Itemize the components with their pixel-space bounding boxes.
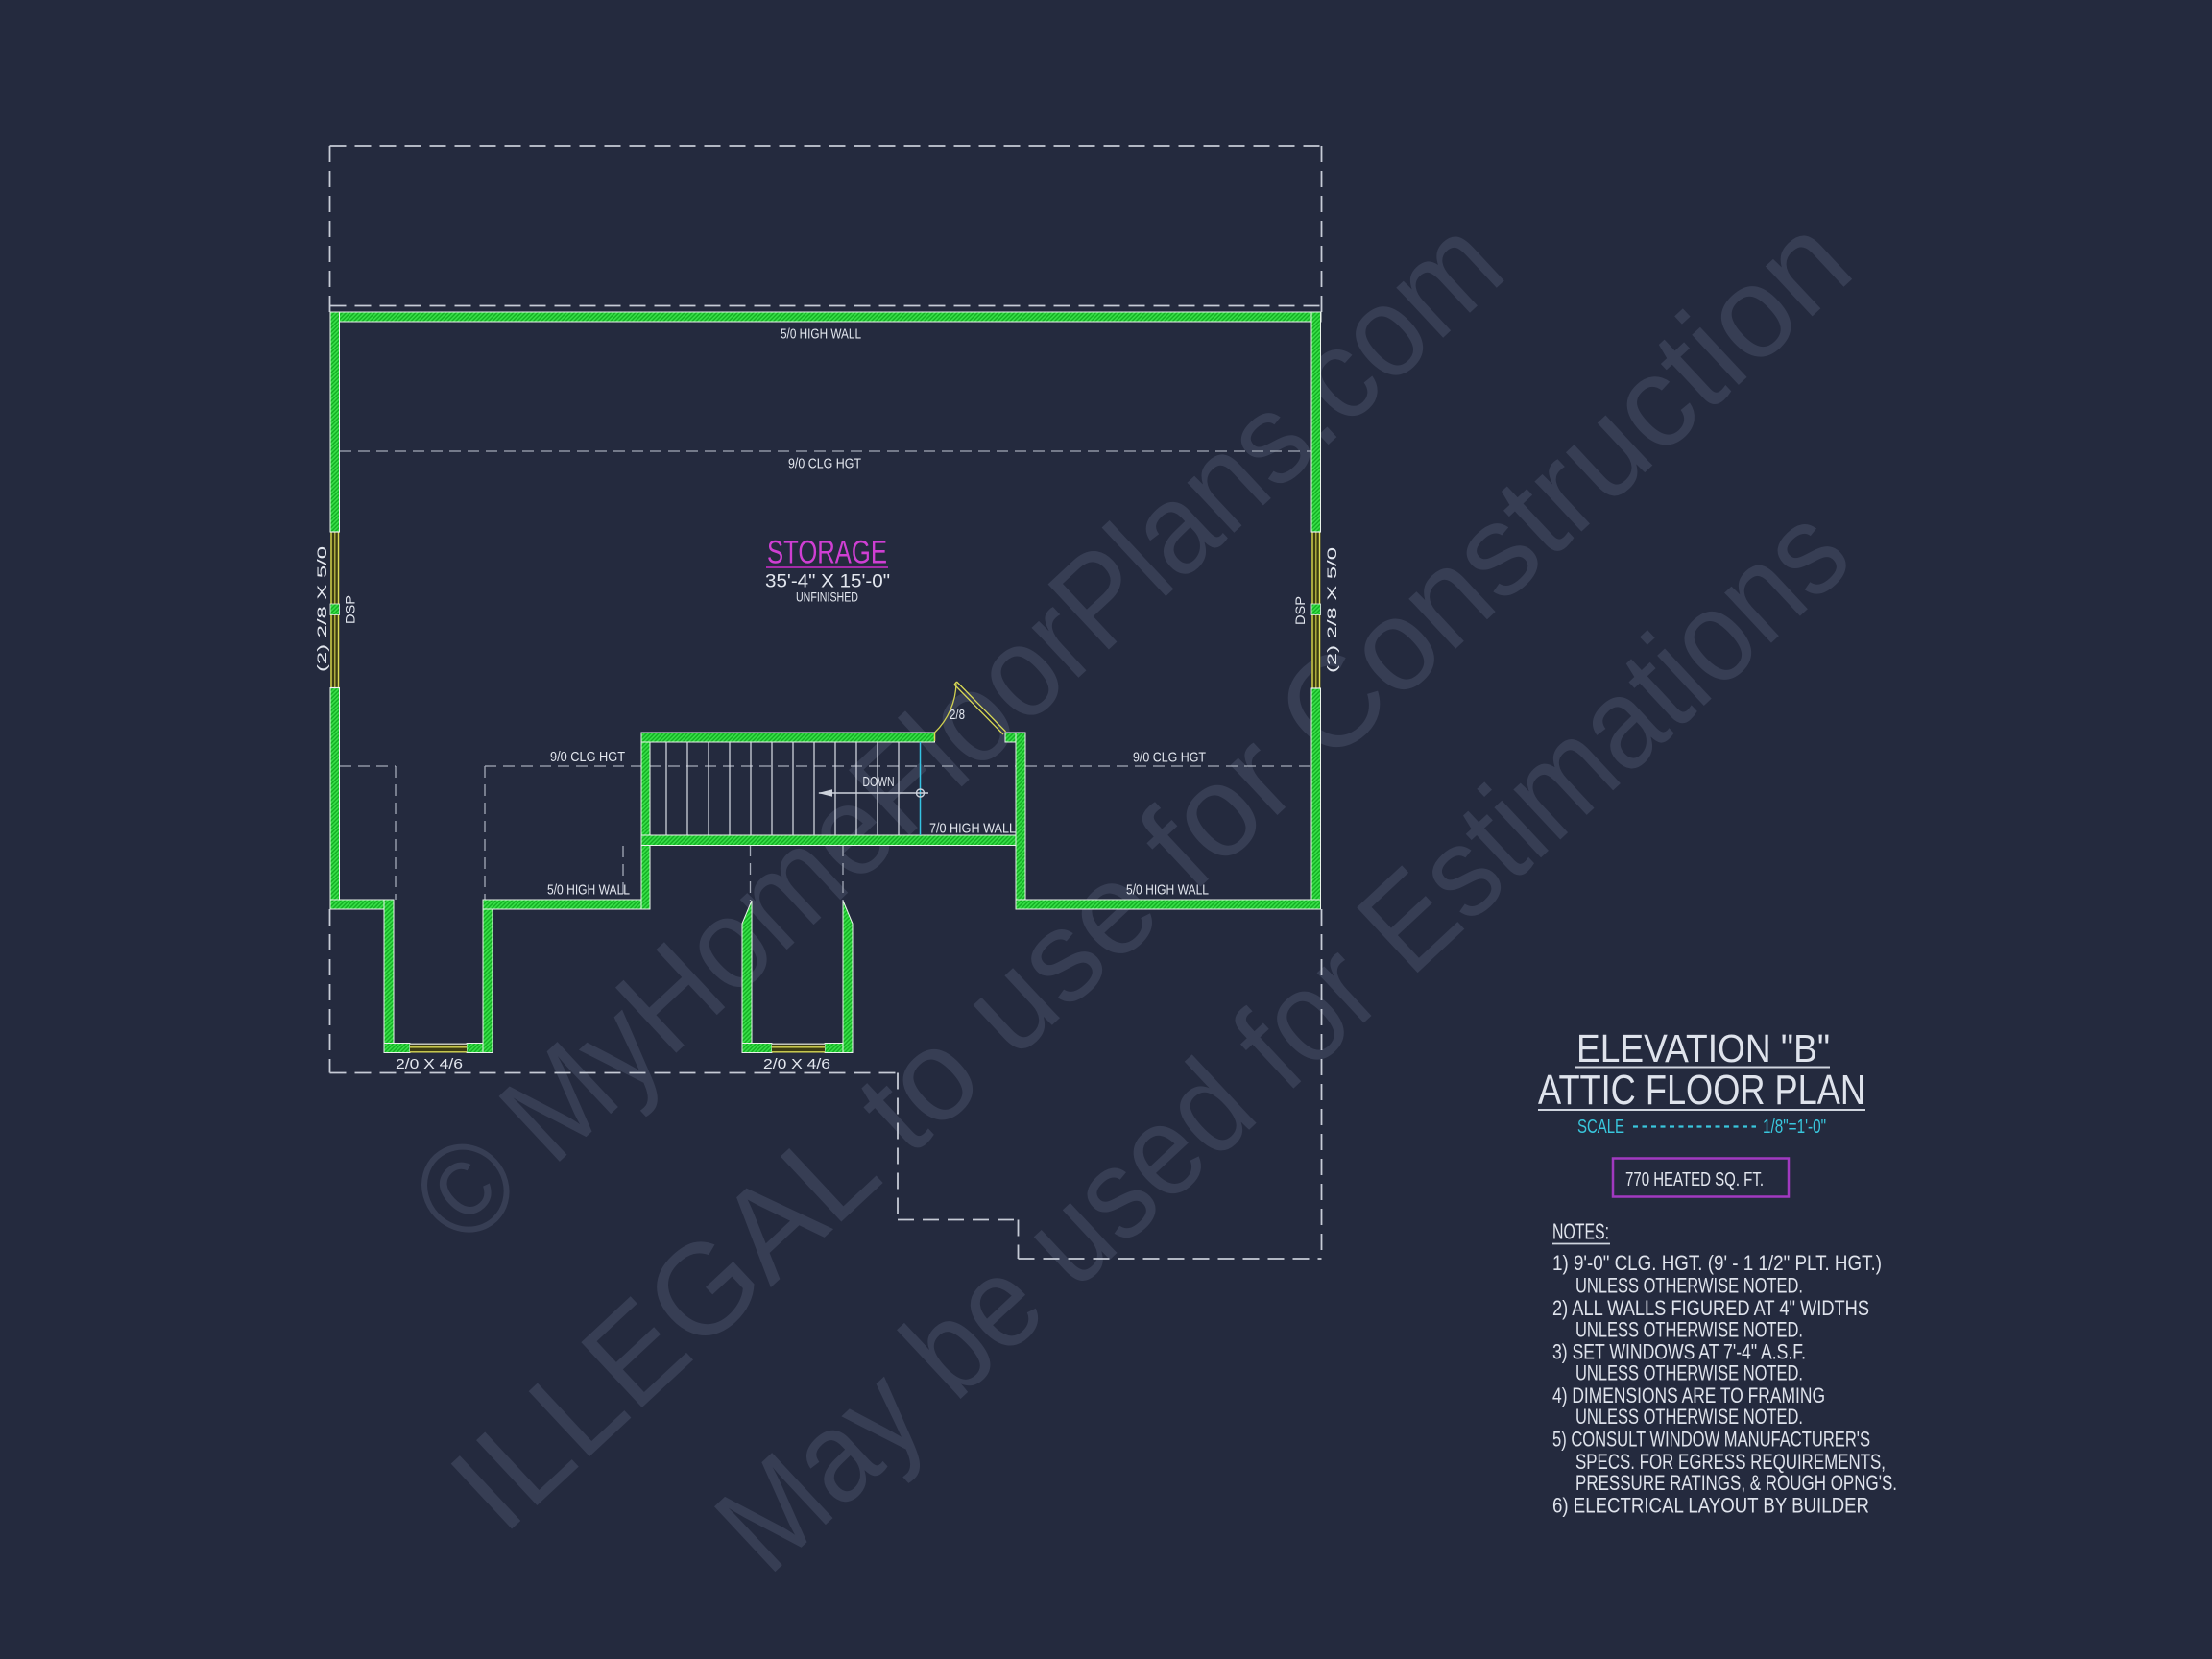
- svg-text:35'-4" X 15'-0": 35'-4" X 15'-0": [765, 572, 890, 592]
- svg-text:(2) 2/8 X 5/0: (2) 2/8 X 5/0: [314, 546, 329, 672]
- svg-text:5) CONSULT WINDOW MANUFACTURER: 5) CONSULT WINDOW MANUFACTURER'S: [1552, 1428, 1870, 1452]
- svg-text:5/0 HIGH WALL: 5/0 HIGH WALL: [1126, 883, 1209, 899]
- svg-text:UNLESS OTHERWISE NOTED.: UNLESS OTHERWISE NOTED.: [1575, 1361, 1803, 1385]
- svg-text:UNLESS OTHERWISE NOTED.: UNLESS OTHERWISE NOTED.: [1575, 1274, 1803, 1298]
- svg-text:9/0 CLG HGT: 9/0 CLG HGT: [788, 457, 861, 472]
- svg-text:DSP: DSP: [1292, 596, 1308, 625]
- svg-text:6) ELECTRICAL LAYOUT BY BUILDE: 6) ELECTRICAL LAYOUT BY BUILDER: [1552, 1494, 1869, 1518]
- svg-text:DSP: DSP: [343, 595, 358, 624]
- svg-text:2/0 X 4/6: 2/0 X 4/6: [396, 1057, 463, 1072]
- svg-text:ATTIC FLOOR PLAN: ATTIC FLOOR PLAN: [1538, 1067, 1865, 1114]
- svg-text:UNLESS OTHERWISE NOTED.: UNLESS OTHERWISE NOTED.: [1575, 1318, 1803, 1342]
- svg-text:9/0 CLG HGT: 9/0 CLG HGT: [1133, 751, 1206, 766]
- svg-text:SCALE: SCALE: [1577, 1116, 1624, 1138]
- svg-text:DOWN: DOWN: [863, 775, 895, 790]
- svg-text:ELEVATION "B": ELEVATION "B": [1576, 1026, 1830, 1070]
- svg-text:1) 9'-0" CLG. HGT. (9' - 1 1/: 1) 9'-0" CLG. HGT. (9' - 1 1/2" PLT. HGT…: [1552, 1251, 1882, 1275]
- svg-text:2/0 X 4/6: 2/0 X 4/6: [763, 1057, 830, 1072]
- svg-text:770 HEATED SQ. FT.: 770 HEATED SQ. FT.: [1625, 1168, 1764, 1190]
- svg-text:NOTES:: NOTES:: [1552, 1219, 1609, 1244]
- svg-text:9/0 CLG HGT: 9/0 CLG HGT: [550, 750, 625, 765]
- svg-text:2) ALL WALLS FIGURED AT 4" WI: 2) ALL WALLS FIGURED AT 4" WIDTHS: [1552, 1296, 1869, 1320]
- svg-text:5/0 HIGH WALL: 5/0 HIGH WALL: [547, 883, 630, 899]
- svg-text:UNFINISHED: UNFINISHED: [796, 590, 858, 605]
- svg-text:2/8: 2/8: [950, 708, 965, 723]
- svg-text:1/8"=1'-0": 1/8"=1'-0": [1763, 1116, 1826, 1138]
- svg-text:5/0 HIGH WALL: 5/0 HIGH WALL: [781, 327, 861, 343]
- svg-text:(2) 2/8 X 5/0: (2) 2/8 X 5/0: [1324, 547, 1339, 673]
- svg-text:PRESSURE RATINGS, & ROUGH OPNG: PRESSURE RATINGS, & ROUGH OPNG'S.: [1575, 1471, 1897, 1495]
- svg-text:STORAGE: STORAGE: [767, 535, 887, 571]
- svg-text:UNLESS OTHERWISE NOTED.: UNLESS OTHERWISE NOTED.: [1575, 1405, 1803, 1429]
- svg-text:7/0 HIGH WALL: 7/0 HIGH WALL: [929, 822, 1016, 837]
